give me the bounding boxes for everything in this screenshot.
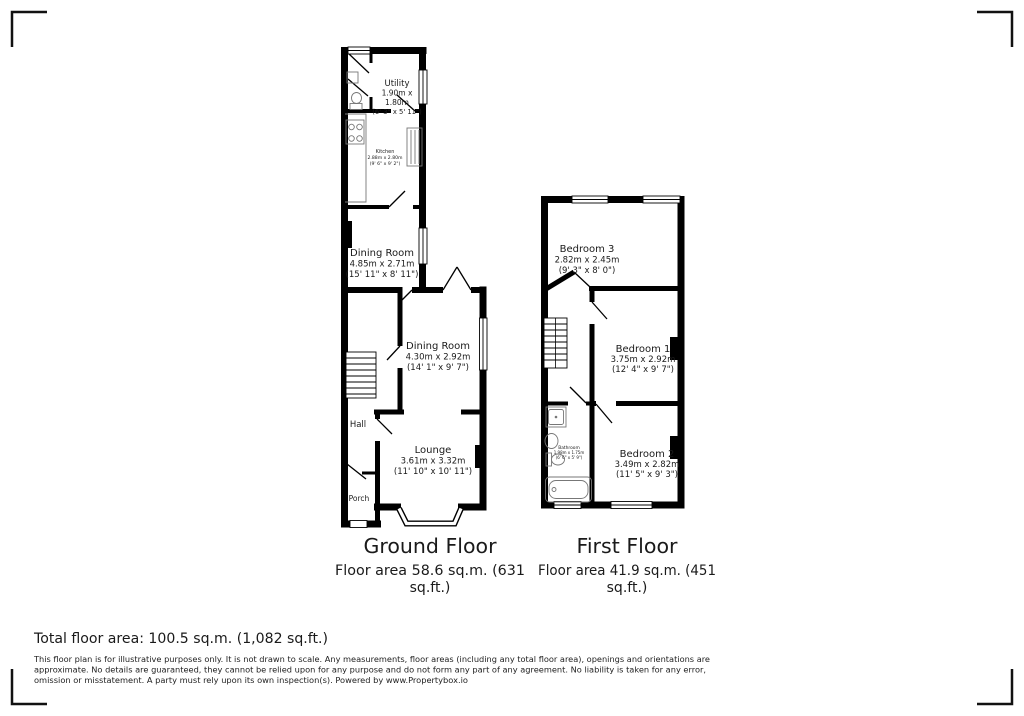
kitchen-label: Kitchen (376, 149, 395, 155)
dining2-label: Dining Room (406, 341, 470, 352)
bedroom1-door-leaf (592, 302, 607, 319)
utility-appliance (347, 72, 358, 83)
corner-mark-top-left (12, 12, 47, 47)
lounge-bay-window (399, 509, 461, 524)
wc-door-leaf (348, 53, 369, 73)
lounge-door-leaf (377, 419, 392, 434)
utility-label: Utility (384, 79, 409, 89)
first-floor-title: First Floor (577, 534, 679, 558)
kitchen-counter (345, 114, 366, 202)
kitchen-metric: 2.88m x 2.80m (367, 155, 403, 161)
utility-imperial: (6' 3" x 5' 11") (372, 108, 422, 116)
disclaimer-line3: omission or misstatement. A party must r… (34, 676, 468, 685)
utility-dim1: 1.90m x (382, 89, 413, 98)
dining-double-door-leaf-left (443, 267, 457, 290)
utility-dim2: 1.80m (385, 98, 409, 107)
bathroom-door-leaf (570, 387, 586, 403)
bedroom2-door-leaf (596, 404, 612, 423)
first-floor-area-line1: Floor area 41.9 sq.m. (451 (538, 563, 716, 579)
bedroom1-label: Bedroom 1 (616, 344, 671, 355)
bedroom2-label: Bedroom 2 (620, 449, 675, 460)
bedroom2-metric: 3.49m x 2.82m (615, 460, 680, 470)
dining1-label: Dining Room (350, 248, 414, 259)
bedroom3-label: Bedroom 3 (560, 244, 615, 255)
bathtub-inner (549, 481, 588, 499)
kitchen-imperial: (9' 6" x 9' 2") (370, 161, 401, 167)
floorplan-canvas: Utility 1.90m x 1.80m (6' 3" x 5' 11") K… (0, 0, 1024, 716)
lounge-imperial: (11' 10" x 10' 11") (394, 467, 472, 477)
first-floor-labels: Bedroom 3 2.82m x 2.45m (9' 3" x 8' 0") … (554, 244, 680, 480)
dining-double-door-leaf-right (457, 267, 471, 290)
porch-label: Porch (349, 494, 370, 503)
bedroom3-top-window-2 (643, 196, 680, 203)
corner-marks (12, 12, 1012, 704)
dining1-imperial: (15' 11" x 8' 11") (346, 270, 419, 280)
utility-right-window (419, 70, 427, 104)
dining2-door-leaf (387, 346, 400, 360)
kitchen-door-leaf (389, 191, 405, 207)
total-floor-area: Total floor area: 100.5 sq.m. (1,082 sq.… (33, 631, 328, 647)
lounge-label: Lounge (415, 445, 452, 456)
ground-floor-title: Ground Floor (364, 534, 498, 558)
ground-floor-area-line1: Floor area 58.6 sq.m. (631 (335, 563, 525, 579)
footer: Total floor area: 100.5 sq.m. (1,082 sq.… (33, 631, 710, 685)
ground-floor-area-line2: sq.ft.) (410, 580, 451, 596)
wc-toilet-tank (350, 104, 362, 110)
bedroom2-bottom-window (611, 502, 652, 509)
dining1-metric: 4.85m x 2.71m (350, 260, 415, 270)
hall-label: Hall (350, 420, 366, 430)
shower-drain (555, 416, 558, 419)
dining2-right-window (480, 318, 488, 370)
lounge-metric: 3.61m x 3.32m (401, 457, 466, 467)
bedroom2-imperial: (11' 5" x 9' 3") (616, 470, 678, 480)
disclaimer-line1: This floor plan is for illustrative purp… (33, 655, 710, 664)
ground-stairs (346, 352, 376, 398)
bathroom-bottom-window (554, 502, 581, 509)
bedroom1-imperial: (12' 4" x 9' 7") (612, 365, 674, 375)
bedroom3-imperial: (9' 3" x 8' 0") (559, 266, 616, 276)
floor-captions: Ground Floor Floor area 58.6 sq.m. (631 … (335, 534, 716, 596)
utility-top-window (348, 47, 370, 54)
first-floor-area-line2: sq.ft.) (607, 580, 648, 596)
wc-toilet-bowl (352, 93, 362, 104)
dining2-imperial: (14' 1" x 9' 7") (407, 363, 469, 373)
first-stairs (544, 318, 567, 368)
bathtub-drain (552, 488, 556, 492)
disclaimer-line2: approximate. No details are guaranteed, … (34, 666, 706, 675)
corner-mark-bottom-right (977, 669, 1012, 704)
bedroom1-metric: 3.75m x 2.92m (611, 355, 676, 365)
porch-front-door (350, 521, 367, 528)
utility-fixtures (347, 72, 362, 110)
dining2-metric: 4.30m x 2.92m (406, 353, 471, 363)
bedroom3-metric: 2.82m x 2.45m (555, 256, 620, 266)
dining1-right-window (419, 228, 427, 264)
bedroom3-top-window (572, 196, 608, 203)
corner-mark-top-right (977, 12, 1012, 47)
bathroom-imperial: (6' 6" x 5' 9") (556, 455, 583, 460)
